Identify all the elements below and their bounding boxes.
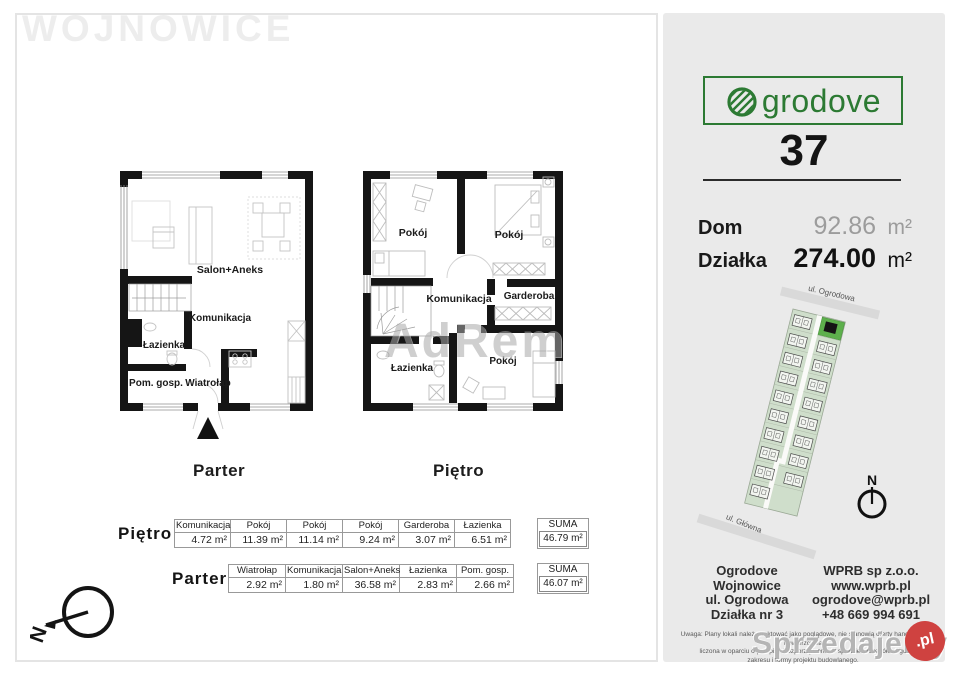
brand-name: grodove: [762, 85, 881, 117]
area-row-dom: Dom 92.86 m²: [698, 212, 912, 241]
table-label-pietro: Piętro: [118, 524, 172, 544]
table-label-parter: Parter: [172, 569, 227, 589]
parcel-map: [745, 309, 846, 516]
suma-box-pietro: SUMA 46.79 m²: [537, 518, 589, 549]
table-cell: Komunikacja1.80 m²: [286, 565, 343, 592]
north-compass-icon: N: [30, 580, 150, 660]
unit-underline: [703, 179, 901, 181]
area-row-dzialka: Działka 274.00 m²: [698, 243, 912, 274]
brand-o-icon: [725, 84, 759, 118]
table-cell: Pokój11.14 m²: [287, 520, 343, 547]
floorplan-parter: Salon+Aneks Komunikacja Łazienka Pom. go…: [120, 171, 313, 446]
room-label-wiatrolap: Wiatrołap: [185, 378, 230, 389]
adrem-watermark: AdRem: [384, 314, 567, 369]
room-label-garderoba: Garderoba: [504, 291, 555, 302]
room-label-komunikacja: Komunikacja: [426, 293, 492, 305]
site-plan: ul. Ogrodowa ul. Główna N: [693, 283, 921, 578]
parter-walls: [120, 171, 313, 411]
table-cell: Pokój11.39 m²: [231, 520, 287, 547]
floorplan-pietro: Pokój Pokój Komunikacja Garderoba Łazien…: [363, 171, 563, 415]
unit-number: 37: [663, 126, 945, 176]
room-label-pom-gosp: Pom. gosp.: [129, 378, 183, 389]
location-watermark: WOJNOWICE: [22, 8, 294, 50]
table-cell: Komunikacja4.72 m²: [175, 520, 231, 547]
compass-letter: N: [867, 472, 877, 488]
table-cell: Łazienka6.51 m²: [455, 520, 510, 547]
table-cell: Salon+Aneks36.58 m²: [343, 565, 400, 592]
area-table-pietro: Komunikacja4.72 m² Pokój11.39 m² Pokój11…: [174, 519, 511, 548]
room-label-salon: Salon+Aneks: [197, 264, 263, 276]
suma-box-parter: SUMA 46.07 m²: [537, 563, 589, 594]
siteplan-compass-icon: N: [859, 472, 885, 517]
contact-address: Ogrodove Wojnowice ul. Ogrodowa Działka …: [688, 564, 806, 622]
table-cell: Garderoba3.07 m²: [399, 520, 455, 547]
area-table-parter: Wiatrołap2.92 m² Komunikacja1.80 m² Salo…: [228, 564, 514, 593]
flyer: WOJNOWICE: [0, 0, 960, 679]
entrance-arrow-icon: [197, 417, 219, 439]
table-cell: Wiatrołap2.92 m²: [229, 565, 286, 592]
sidebar-panel: grodove 37 Dom 92.86 m² Działka 274.00 m…: [663, 13, 945, 662]
room-label-pokoj2: Pokój: [495, 229, 524, 241]
table-cell: Pom. gosp.2.66 m²: [457, 565, 513, 592]
room-label-pokoj1: Pokój: [399, 227, 428, 239]
parter-windows: [121, 172, 290, 410]
table-cell: Pokój9.24 m²: [343, 520, 399, 547]
room-label-lazienka: Łazienka: [143, 340, 186, 351]
stairs: [129, 284, 191, 311]
brand-logo: grodove: [703, 76, 903, 125]
table-cell: Łazienka2.83 m²: [400, 565, 457, 592]
room-label-komunikacja: Komunikacja: [189, 313, 252, 324]
contact-company: WPRB sp z.o.o. www.wprb.pl ogrodove@wprb…: [806, 564, 936, 622]
caption-pietro: Piętro: [433, 461, 484, 481]
caption-parter: Parter: [193, 461, 245, 481]
